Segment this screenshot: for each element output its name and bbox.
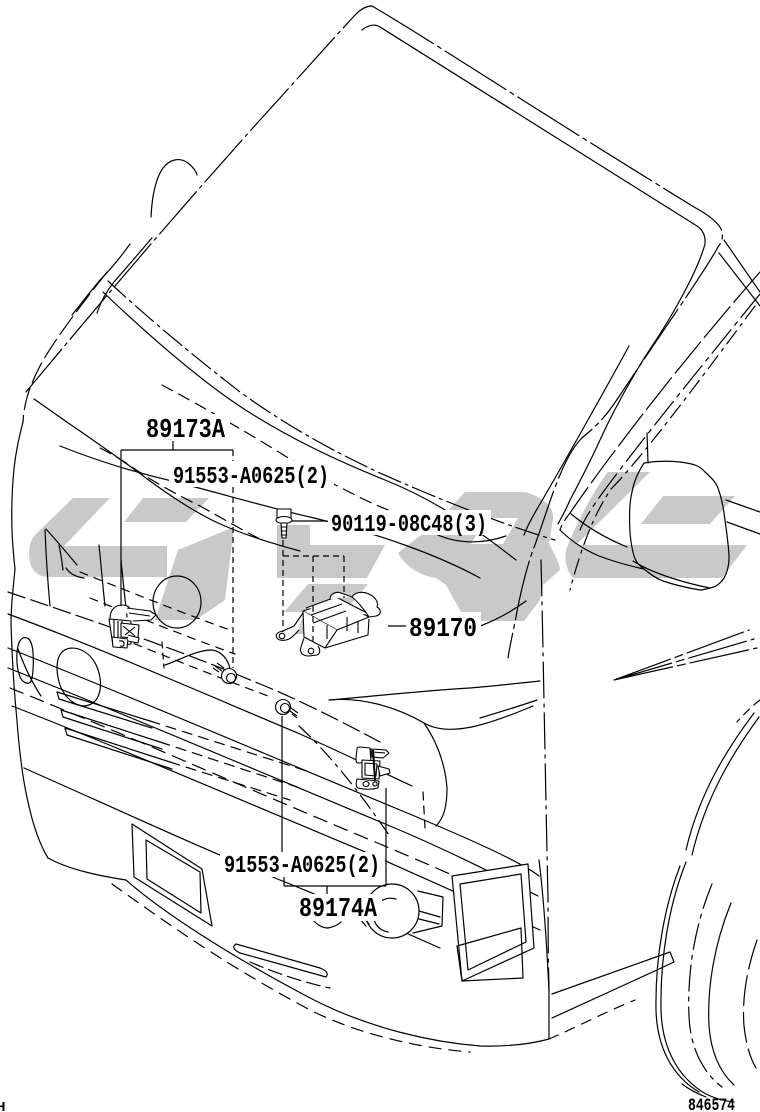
svg-text:90119-08C48(3): 90119-08C48(3) [331, 512, 487, 539]
svg-text:846574: 846574 [688, 1096, 735, 1112]
svg-text:89170: 89170 [409, 615, 477, 645]
svg-text:89173A: 89173A [146, 415, 225, 445]
svg-text:91553-A0625(2): 91553-A0625(2) [173, 464, 329, 491]
svg-text:91553-A0625(2): 91553-A0625(2) [224, 853, 380, 880]
svg-text:89174A: 89174A [299, 894, 377, 924]
svg-text:H: H [0, 1100, 5, 1112]
